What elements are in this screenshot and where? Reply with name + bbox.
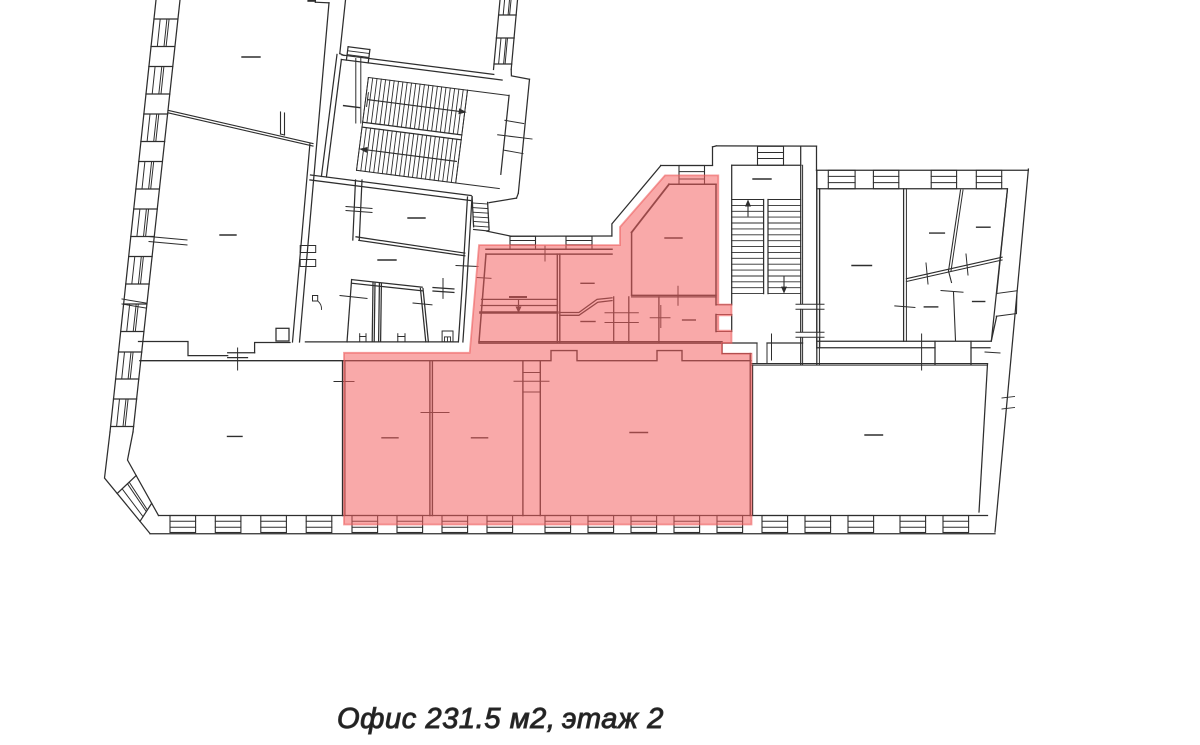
svg-text:Офис 231.5 м2, этаж 2: Офис 231.5 м2, этаж 2: [337, 703, 664, 735]
